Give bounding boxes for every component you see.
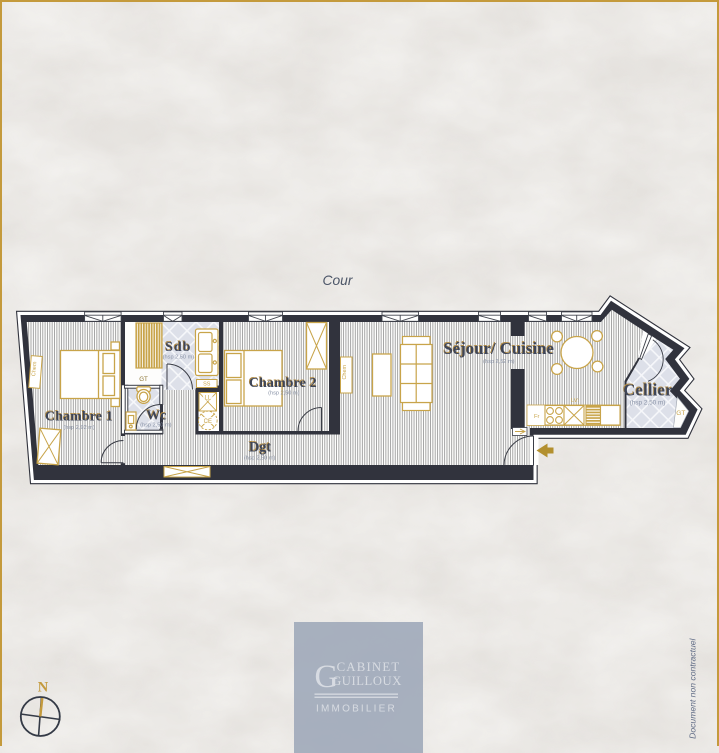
svg-text:(hsp 2,50 m): (hsp 2,50 m) [268,391,300,397]
svg-text:Cellier: Cellier [623,381,673,400]
svg-text:(hsp 2,50 m): (hsp 2,50 m) [163,355,195,361]
svg-text:LV:: LV: [571,398,579,404]
svg-text:(hsp 2,50 m): (hsp 2,50 m) [244,456,276,462]
svg-text:(hsp 2,52 m): (hsp 2,52 m) [483,359,515,365]
svg-text:Sdb: Sdb [165,339,191,354]
svg-text:Séjour/ Cuisine: Séjour/ Cuisine [443,339,554,358]
svg-text:Chem: Chem [31,361,38,377]
svg-text:CE: CE [204,419,212,425]
svg-text:LL: LL [204,396,211,402]
svg-text:Wc: Wc [146,409,166,424]
svg-text:Dgt: Dgt [249,440,271,456]
svg-text:GT: GT [676,410,685,417]
svg-text:IMMOBILIER: IMMOBILIER [316,704,397,715]
svg-text:(hsp 2,92 m): (hsp 2,92 m) [63,425,95,431]
svg-text:Fr: Fr [534,414,540,420]
svg-text:SS: SS [203,382,211,388]
svg-text:N: N [38,680,49,696]
svg-text:GT: GT [139,376,148,383]
svg-text:Document non contractuel: Document non contractuel [687,637,697,738]
svg-text:Chem: Chem [342,364,348,379]
svg-text:(hsp 2,50 m): (hsp 2,50 m) [140,423,172,429]
svg-text:(hsp 2,50 m): (hsp 2,50 m) [630,400,666,407]
svg-text:Chambre 1: Chambre 1 [45,409,113,424]
svg-text:Cour: Cour [323,273,354,288]
svg-text:Chambre 2: Chambre 2 [249,375,317,390]
svg-text:GUILLOUX: GUILLOUX [332,674,402,688]
svg-text:CABINET: CABINET [337,660,401,674]
